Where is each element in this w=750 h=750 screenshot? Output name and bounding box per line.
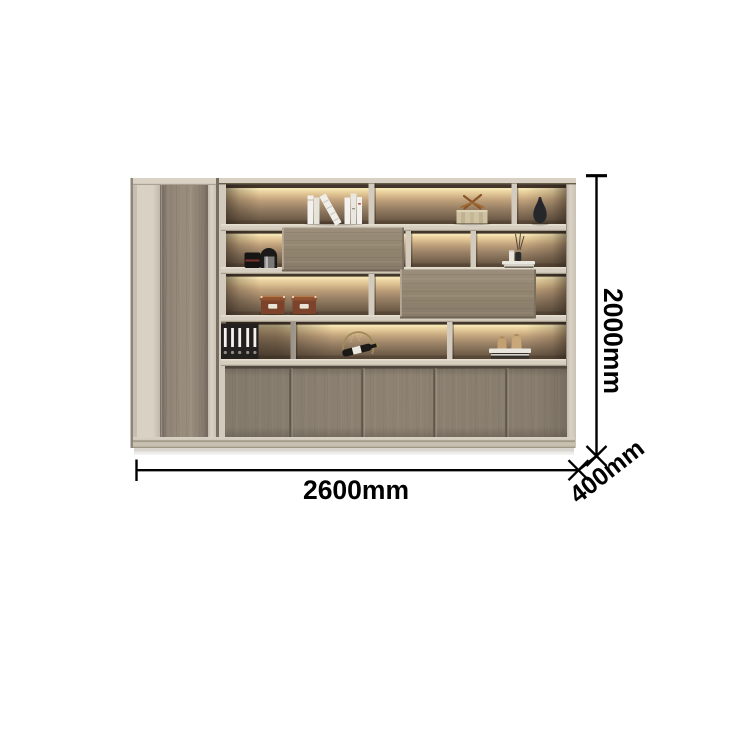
svg-text:2600mm: 2600mm <box>303 475 409 505</box>
svg-text:2000mm: 2000mm <box>598 288 628 394</box>
